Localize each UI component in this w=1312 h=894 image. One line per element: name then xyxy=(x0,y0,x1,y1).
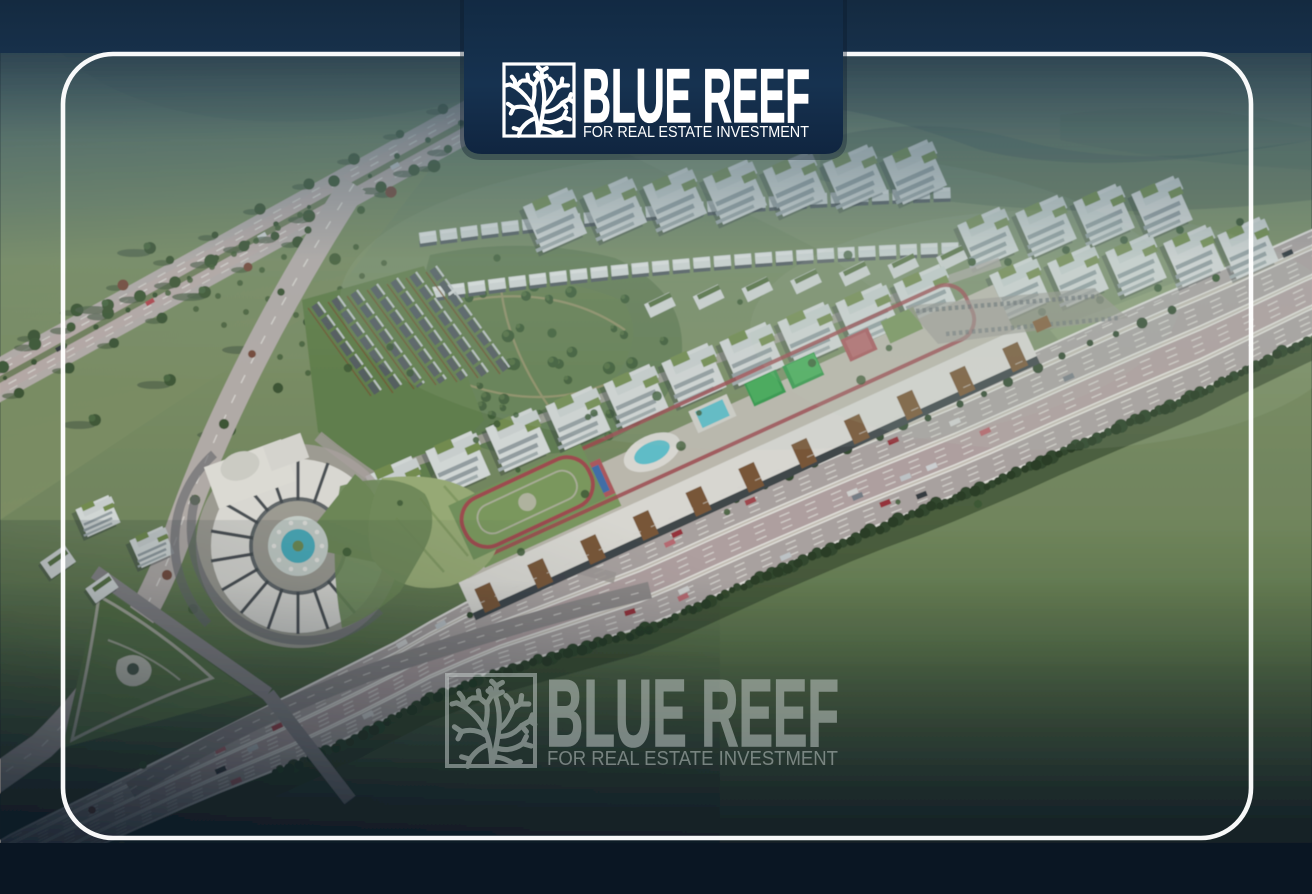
svg-text:FOR REAL ESTATE INVESTMENT: FOR REAL ESTATE INVESTMENT xyxy=(583,124,809,141)
svg-text:FOR REAL ESTATE INVESTMENT: FOR REAL ESTATE INVESTMENT xyxy=(547,748,838,770)
